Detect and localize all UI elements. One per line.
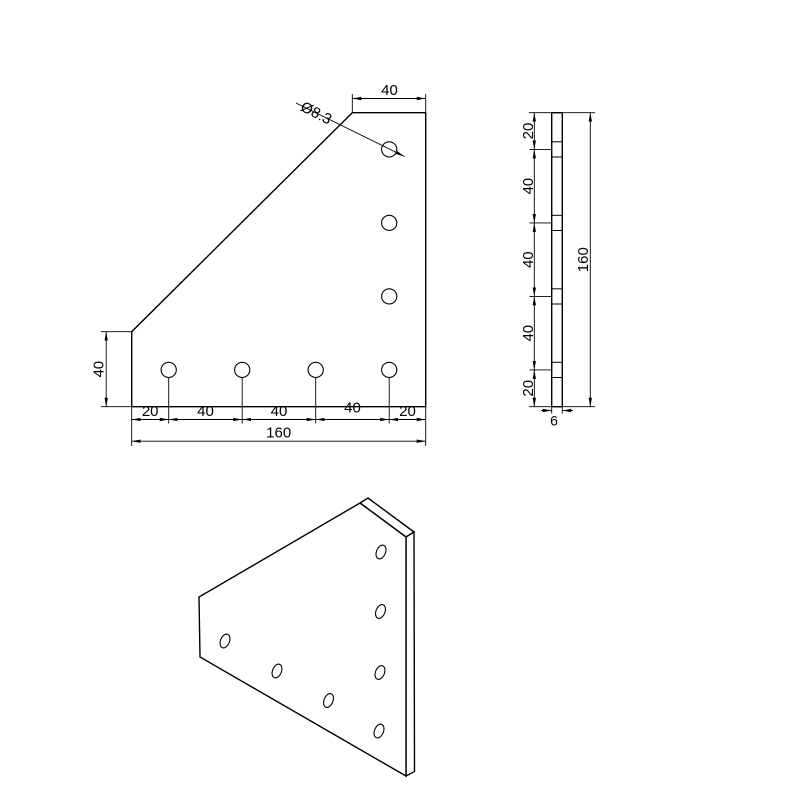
- dim-total-width: 160: [132, 425, 426, 442]
- dim-label-side-chain-5: 20: [520, 380, 537, 397]
- bolt-hole: [382, 289, 397, 304]
- bolt-hole: [382, 215, 397, 230]
- dim-label-side-chain-4: 40: [520, 325, 537, 342]
- dim-label-chain-4: 40: [344, 400, 361, 417]
- dim-left-height: 40: [91, 332, 132, 407]
- dim-label-hole-diameter: Ø8.3: [298, 98, 335, 128]
- bolt-hole: [235, 362, 250, 377]
- dim-label-chain-5: 20: [399, 403, 416, 420]
- iso-side-face: [406, 532, 415, 776]
- dim-total-height: 160: [575, 113, 592, 407]
- dim-label-thickness: 6: [550, 413, 558, 429]
- front-view: 40 Ø8.3 40 20 40: [91, 82, 426, 446]
- bolt-hole: [382, 362, 397, 377]
- isometric-view: [199, 498, 415, 776]
- dim-label-side-chain-1: 20: [520, 123, 537, 140]
- side-view: 20 40 40 40 20 160 6: [520, 113, 595, 429]
- drawing-page: 40 Ø8.3 40 20 40: [0, 0, 800, 800]
- bolt-hole: [308, 362, 323, 377]
- dim-top-width: 40: [352, 82, 425, 113]
- dim-label-chain-3: 40: [271, 403, 288, 420]
- dim-label-total-height: 160: [575, 247, 592, 272]
- dim-label-chain-2: 40: [197, 403, 214, 420]
- drawing-canvas: 40 Ø8.3 40 20 40: [0, 0, 800, 800]
- dim-label-total-width: 160: [266, 425, 291, 442]
- dim-label-side-chain-3: 40: [520, 251, 537, 268]
- dim-label-chain-1: 20: [142, 403, 159, 420]
- dim-label-left-height: 40: [91, 361, 108, 378]
- plate-outline: [132, 113, 426, 407]
- dim-label-top-width: 40: [381, 82, 398, 99]
- bolt-hole: [161, 362, 176, 377]
- dim-thickness: 6: [541, 407, 573, 429]
- dim-label-side-chain-2: 40: [520, 178, 537, 195]
